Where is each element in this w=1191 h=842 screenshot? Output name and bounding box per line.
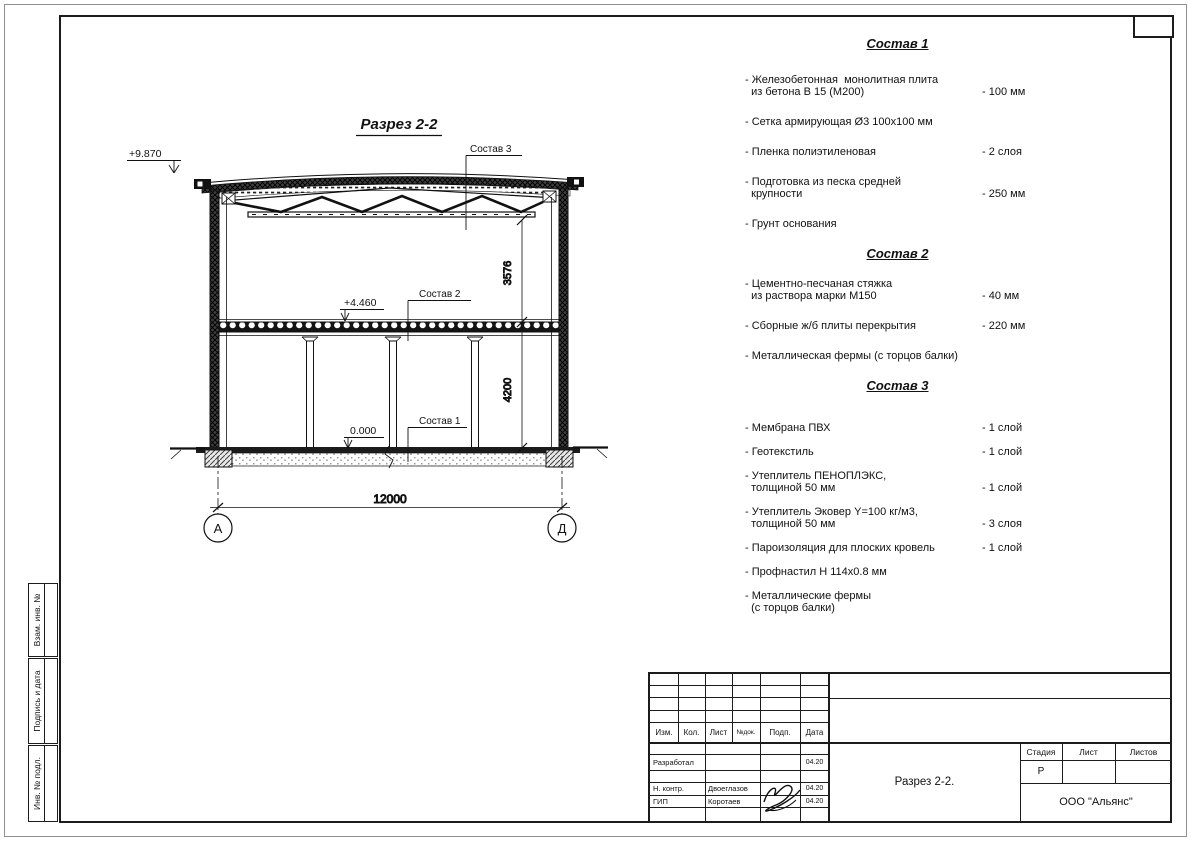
composition-section-1: Состав 1 - Железобетонная монолитная пли… — [745, 38, 1050, 230]
vertical-dimension: 3576 4200 — [502, 215, 527, 453]
tb-stage-value: Р — [1020, 760, 1062, 783]
tb-name-gip: Коротаев — [705, 795, 763, 807]
left-wall — [210, 190, 219, 452]
tb-date-developer: 04.20 — [800, 754, 829, 770]
leader-sostav2: Состав 2 — [408, 289, 471, 341]
column — [302, 337, 318, 448]
tb-role-developer: Разработал — [650, 754, 708, 770]
dim-floor-height: 4200 — [502, 378, 514, 402]
tb-sheet-label: Лист — [1062, 743, 1115, 760]
composition-item: - Подготовка из песка средней крупности … — [745, 176, 1050, 200]
composition-item: - Железобетонная монолитная плита из бет… — [745, 74, 1050, 98]
column — [467, 337, 483, 448]
elevation-roof: +9.870 — [127, 148, 181, 173]
composition-item: - Сборные ж/б плиты перекрытия - 220 мм — [745, 320, 1050, 332]
tb-stage-label: Стадия — [1020, 743, 1062, 760]
composition-item: - Пароизоляция для плоских кровель - 1 с… — [745, 542, 1050, 554]
roof — [194, 174, 584, 199]
elevation-ground: 0.000 — [344, 425, 384, 448]
composition-item: - Грунт основания — [745, 218, 1050, 230]
composition-item: - Геотекстиль - 1 слой — [745, 446, 1050, 458]
elevation-ground-text: 0.000 — [350, 425, 376, 437]
tb-col-data: Дата — [800, 722, 829, 742]
tb-sheets-label: Листов — [1115, 743, 1172, 760]
composition-item: - Мембрана ПВХ - 1 слой — [745, 422, 1050, 434]
tb-company: ООО "Альянс" — [1020, 783, 1172, 821]
foundation-right — [546, 450, 573, 467]
column — [385, 337, 401, 448]
composition-section-3: Состав 3 - Мембрана ПВХ - 1 слой - Геоте… — [745, 380, 1050, 614]
floor-slab — [219, 320, 559, 336]
truss-bottom-chord — [248, 212, 535, 217]
composition-items: - Железобетонная монолитная плита из бет… — [745, 74, 1050, 230]
dim-span: 12000 — [373, 492, 407, 506]
tb-col-izm: Изм. — [650, 722, 678, 742]
tb-role-ncontrol: Н. контр. — [650, 782, 708, 795]
composition-section-2: Состав 2 - Цементно-песчаная стяжка из р… — [745, 248, 1050, 362]
tb-col-ndok: №док. — [732, 722, 760, 742]
leader-sostav2-text: Состав 2 — [419, 289, 461, 300]
composition-heading: Состав 2 — [745, 248, 1050, 260]
composition-item: - Цементно-песчаная стяжка из раствора м… — [745, 278, 1050, 302]
axis-label-left: А — [214, 521, 223, 536]
leader-sostav3-text: Состав 3 — [470, 144, 512, 155]
foundation-left — [205, 450, 232, 467]
interior-columns — [302, 337, 483, 448]
tb-col-kol: Кол. — [678, 722, 705, 742]
tb-col-podp: Подп. — [760, 722, 800, 742]
composition-items: - Мембрана ПВХ - 1 слой - Геотекстиль - … — [745, 422, 1050, 614]
elevation-roof-text: +9.870 — [129, 148, 162, 160]
signature-scribble — [758, 778, 804, 816]
tb-date-gip: 04.20 — [800, 795, 829, 807]
truss-diagonals — [235, 196, 543, 212]
span-dimension: 12000 А Д — [204, 456, 576, 542]
axis-label-right: Д — [558, 521, 567, 536]
composition-heading: Состав 3 — [745, 380, 1050, 392]
sand-layer — [232, 453, 546, 466]
composition-item: - Пленка полиэтиленовая - 2 слоя — [745, 146, 1050, 158]
tb-name-ncontrol: Двоеглазов — [705, 782, 763, 795]
tb-role-gip: ГИП — [650, 795, 708, 807]
drawing-title: Разрез 2-2 — [356, 116, 442, 136]
right-wall — [559, 188, 568, 452]
ground — [170, 446, 608, 468]
leader-sostav1-text: Состав 1 — [419, 416, 461, 427]
composition-item: - Металлическая фермы (с торцов балки) — [745, 350, 1050, 362]
tb-date-ncontrol: 04.20 — [800, 782, 829, 795]
composition-item: - Утеплитель ПЕНОПЛЭКС, толщиной 50 мм -… — [745, 470, 1050, 494]
composition-item: - Сетка армирующая Ø3 100х100 мм — [745, 116, 1050, 128]
composition-item: - Профнастил Н 114х0.8 мм — [745, 566, 1050, 578]
composition-item: - Металлические фермы (с торцов балки) — [745, 590, 1050, 614]
elevation-floor2: +4.460 — [340, 297, 384, 321]
drawing-sheet: Взам. инв. № Подпись и дата Инв. № подл. — [0, 0, 1191, 842]
section-title-text: Разрез 2-2 — [360, 116, 438, 133]
elevation-floor2-text: +4.460 — [344, 297, 377, 309]
composition-item: - Утеплитель Эковер Y=100 кг/м3, толщино… — [745, 506, 1050, 530]
tb-col-list: Лист — [705, 722, 732, 742]
composition-heading: Состав 1 — [745, 38, 1050, 50]
tb-doc-title: Разрез 2-2. — [829, 743, 1020, 821]
titleblock-top-line — [648, 672, 1172, 674]
composition-lists: Состав 1 - Железобетонная монолитная пли… — [745, 30, 1050, 626]
dim-truss-height: 3576 — [502, 261, 514, 285]
composition-items: - Цементно-песчаная стяжка из раствора м… — [745, 278, 1050, 362]
